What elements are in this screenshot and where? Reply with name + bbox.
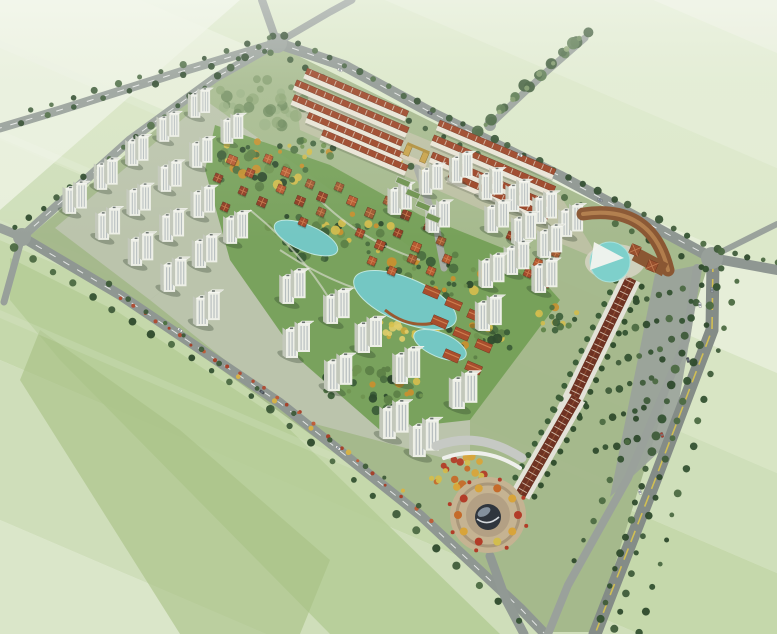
rendering-canvas xyxy=(0,0,777,634)
atmosphere-haze xyxy=(0,0,777,240)
car xyxy=(710,287,713,292)
aerial-masterplan-rendering xyxy=(0,0,777,634)
